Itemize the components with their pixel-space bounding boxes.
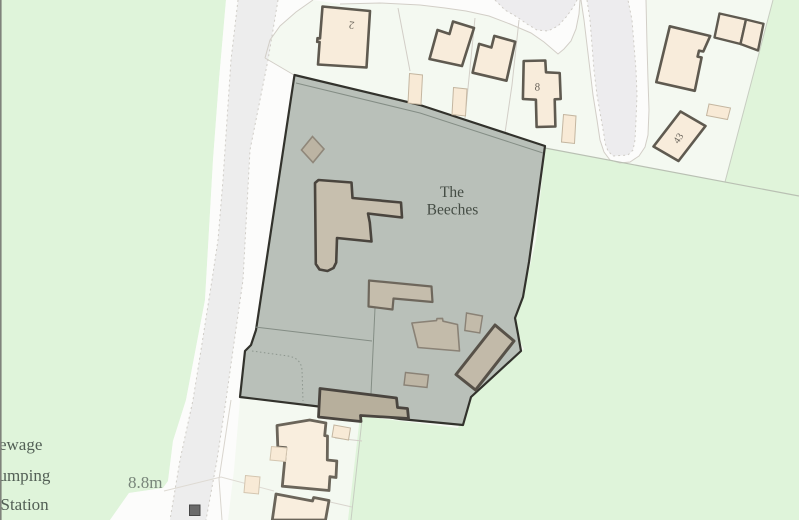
svg-text:Sewage: Sewage [0, 435, 42, 454]
svg-text:Beeches: Beeches [427, 202, 479, 219]
svg-text:The: The [440, 184, 464, 201]
svg-text:Pumping: Pumping [0, 466, 51, 485]
svg-text:8.8m: 8.8m [128, 473, 162, 492]
svg-text:Station: Station [1, 495, 50, 514]
svg-text:8: 8 [534, 81, 540, 93]
